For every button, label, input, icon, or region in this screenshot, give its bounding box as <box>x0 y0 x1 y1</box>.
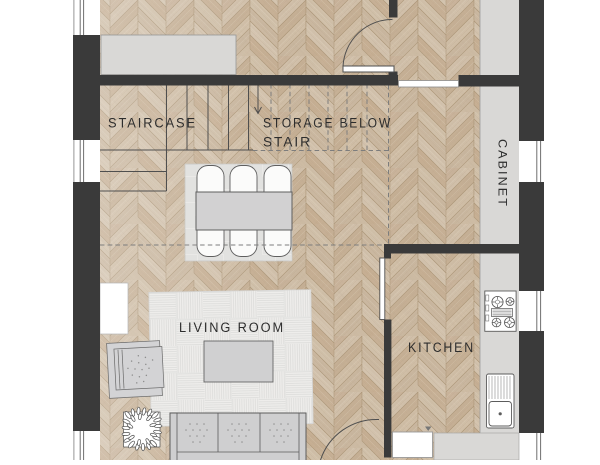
svg-text:KITCHEN: KITCHEN <box>408 340 475 355</box>
svg-text:LIVING ROOM: LIVING ROOM <box>179 320 285 335</box>
svg-text:STAIRCASE: STAIRCASE <box>108 116 197 131</box>
svg-text:STORAGE BELOW: STORAGE BELOW <box>263 116 392 131</box>
svg-text:CABINET: CABINET <box>496 139 510 208</box>
svg-text:STAIR: STAIR <box>263 135 312 150</box>
